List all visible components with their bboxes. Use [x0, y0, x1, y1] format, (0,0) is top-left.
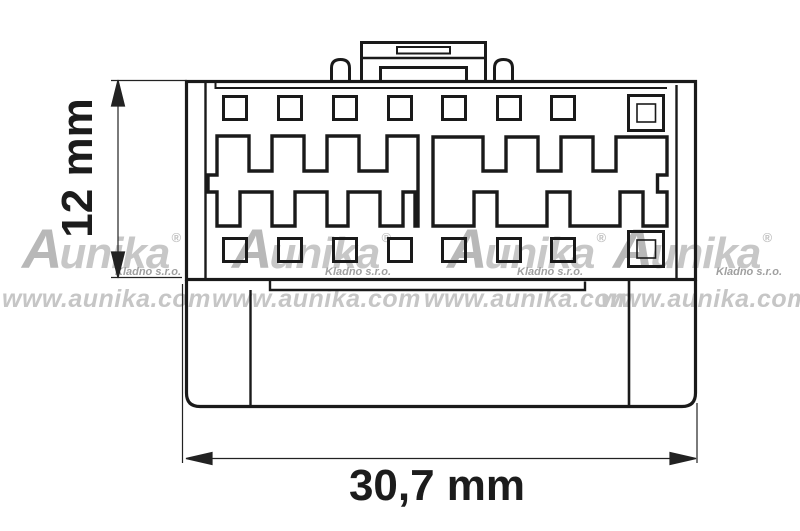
dimension-height: [111, 80, 187, 278]
pin-square: [389, 239, 412, 262]
keyed-pin-inner: [637, 240, 656, 258]
pin-square: [389, 97, 412, 120]
connector-lower-body: [187, 280, 696, 407]
height-dimension-label: 12 mm: [56, 76, 100, 260]
pin-square: [552, 97, 575, 120]
arrowhead-right: [670, 453, 696, 465]
latch-bump-right: [495, 60, 513, 82]
connector-line-art: [0, 0, 800, 531]
latch-bump-left: [332, 60, 350, 82]
pin-square: [279, 239, 302, 262]
pin-square: [552, 239, 575, 262]
pin-square: [498, 97, 521, 120]
keyed-pin-outer: [629, 96, 664, 131]
width-dimension-label: 30,7 mm: [337, 464, 537, 508]
comb-right-group: [433, 137, 667, 226]
arrowhead-down: [112, 252, 125, 278]
keyed-pin-outer: [629, 232, 664, 267]
pin-square: [224, 97, 247, 120]
keyed-pin-inner: [637, 104, 656, 122]
lower-body-outline: [187, 280, 696, 407]
pin-square: [279, 97, 302, 120]
pin-square: [224, 239, 247, 262]
pin-square: [443, 239, 466, 262]
pin-square: [498, 239, 521, 262]
dimension-width: [183, 284, 698, 465]
pin-square: [334, 97, 357, 120]
pin-row-top: [224, 96, 664, 131]
pin-row-bottom: [224, 232, 664, 267]
connector-dimension-drawing: Aunika® Aunika® Aunika® Aunika® Kladno s…: [0, 0, 800, 531]
latch-slot: [397, 47, 450, 54]
pin-square: [334, 239, 357, 262]
lower-body-step: [270, 281, 585, 290]
comb-cavities: [208, 136, 667, 226]
arrowhead-left: [186, 453, 212, 465]
comb-left-group: [208, 136, 418, 226]
latch-inner-window: [381, 68, 467, 82]
pin-square: [443, 97, 466, 120]
arrowhead-up: [112, 80, 125, 106]
latch: [332, 43, 513, 82]
